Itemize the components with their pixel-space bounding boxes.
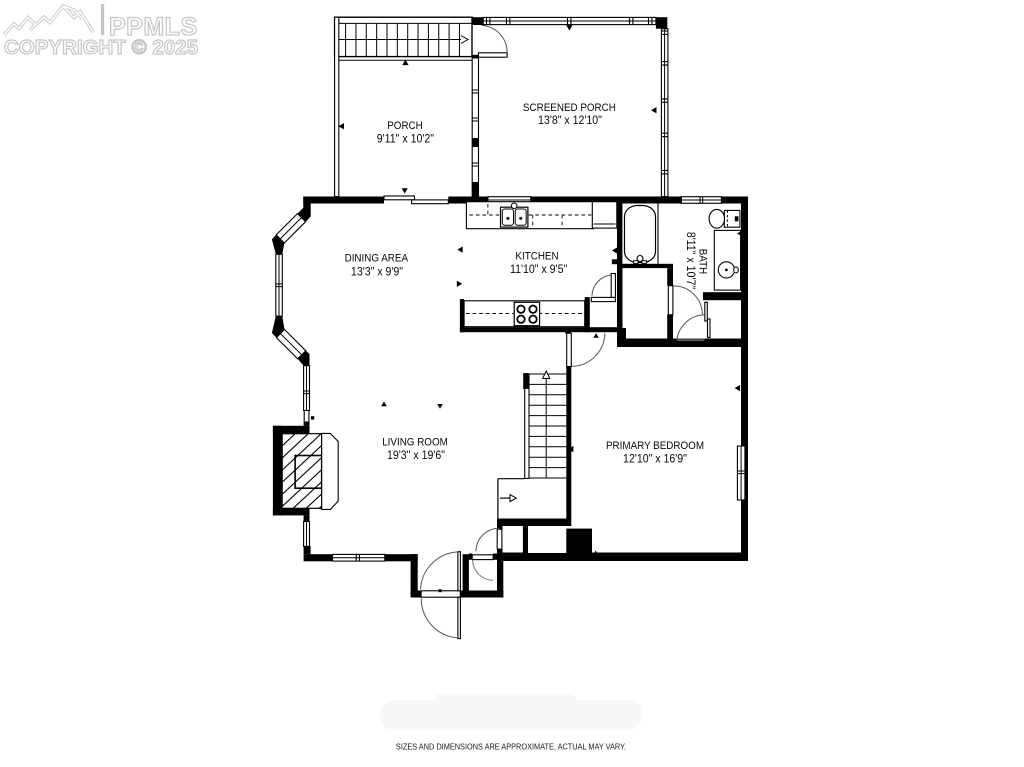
svg-text:KITCHEN: KITCHEN — [515, 250, 558, 263]
svg-text:SCREENED PORCH: SCREENED PORCH — [523, 101, 616, 114]
svg-text:19'3" x 19'6": 19'3" x 19'6" — [387, 450, 445, 463]
svg-text:PORCH: PORCH — [387, 119, 423, 132]
svg-text:9'11" x 10'2": 9'11" x 10'2" — [377, 133, 434, 146]
svg-text:DINING AREA: DINING AREA — [345, 252, 408, 265]
svg-text:LIVING ROOM: LIVING ROOM — [382, 436, 448, 449]
svg-text:12'10" x 16'9": 12'10" x 16'9" — [623, 453, 687, 466]
svg-text:13'3" x 9'9": 13'3" x 9'9" — [351, 266, 403, 279]
svg-text:11'10" x 9'5": 11'10" x 9'5" — [510, 263, 567, 276]
svg-text:COPYRIGHT © 2025: COPYRIGHT © 2025 — [4, 36, 198, 59]
svg-text:8'11" x 10'7": 8'11" x 10'7" — [684, 232, 697, 289]
svg-text:PRIMARY BEDROOM: PRIMARY BEDROOM — [606, 439, 704, 452]
svg-text:13'8" x 12'10": 13'8" x 12'10" — [538, 115, 602, 128]
svg-text:BATH: BATH — [696, 249, 709, 275]
svg-text:SIZES AND DIMENSIONS ARE APPRO: SIZES AND DIMENSIONS ARE APPROXIMATE, AC… — [396, 742, 626, 752]
